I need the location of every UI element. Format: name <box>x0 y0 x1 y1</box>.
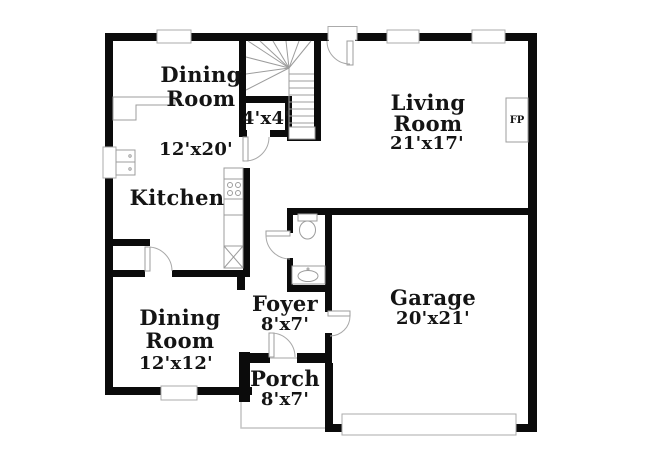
svg-text:21'x17': 21'x17' <box>390 133 464 154</box>
svg-text:Dining: Dining <box>139 305 220 330</box>
label-foyer: Foyer 8'x7' <box>252 291 319 335</box>
window-kitchen <box>103 147 116 178</box>
door-stair-closet <box>243 137 269 161</box>
toilet <box>298 214 317 239</box>
kitchen-range-counter <box>224 168 243 268</box>
svg-text:Foyer: Foyer <box>252 291 319 316</box>
window-dining-bottom <box>161 386 197 400</box>
door-bathroom <box>266 231 290 259</box>
svg-text:8'x7': 8'x7' <box>261 389 309 410</box>
label-kitchen: Kitchen <box>130 185 225 210</box>
bathroom-sink <box>292 266 325 284</box>
kitchen-sink <box>116 150 135 175</box>
door-living-room-entry <box>327 27 357 66</box>
door-kitchen-dining <box>145 247 172 271</box>
svg-text:Dining: Dining <box>160 62 241 87</box>
label-stair-closet: 4'x4' <box>242 108 290 129</box>
garage-door <box>342 414 516 435</box>
svg-text:Room: Room <box>146 328 215 353</box>
door-foyer-garage <box>328 311 350 336</box>
svg-text:Kitchen: Kitchen <box>130 185 225 210</box>
window-living-left <box>387 30 419 43</box>
svg-text:Garage: Garage <box>390 285 476 310</box>
fireplace: FP <box>506 98 528 142</box>
door-front <box>269 333 295 357</box>
floor-plan: FP Dining Room 12'x20' 4'x4' Living Room… <box>0 0 650 473</box>
svg-text:4'x4': 4'x4' <box>242 108 290 129</box>
window-living-right <box>472 30 505 43</box>
label-living-room: Living Room 21'x17' <box>390 90 465 154</box>
bathroom-fixtures <box>292 214 325 284</box>
label-garage: Garage 20'x21' <box>390 285 476 329</box>
svg-text:Room: Room <box>167 86 236 111</box>
window-dining-top <box>157 30 191 43</box>
svg-text:8'x7': 8'x7' <box>261 314 309 335</box>
label-dining-room-bottom: Dining Room 12'x12' <box>139 305 221 374</box>
stair-landing <box>289 127 315 139</box>
svg-text:12'x12': 12'x12' <box>139 353 213 374</box>
svg-text:20'x21': 20'x21' <box>396 308 470 329</box>
label-dining-room-top: Dining Room 12'x20' <box>159 62 242 160</box>
svg-text:Porch: Porch <box>250 366 320 391</box>
fireplace-label: FP <box>510 115 525 126</box>
svg-text:12'x20': 12'x20' <box>159 139 233 160</box>
